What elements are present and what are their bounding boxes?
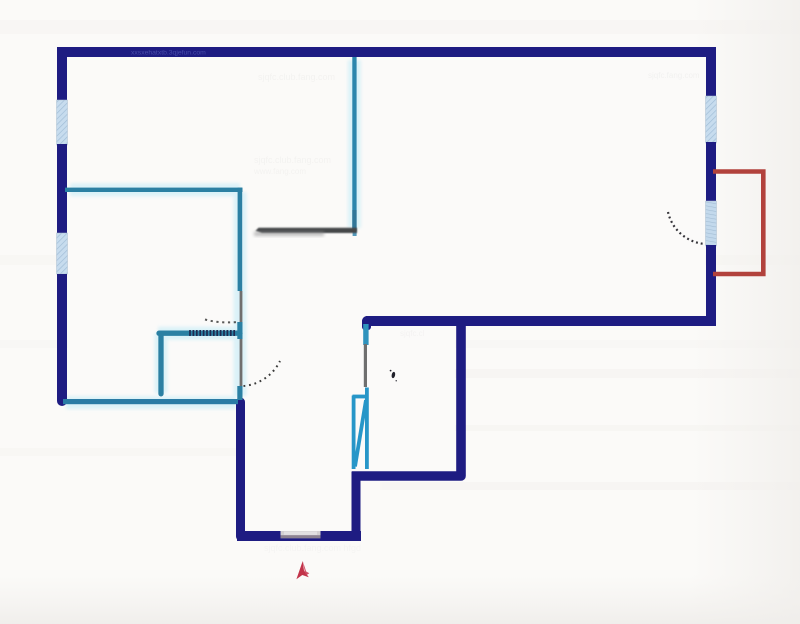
svg-text:sjqfc.cl: sjqfc.cl [400,329,425,338]
svg-text:sjqfc.club.fang.com: sjqfc.club.fang.com [258,72,335,82]
svg-text:sjqfc.fang.com: sjqfc.fang.com [648,71,700,80]
svg-text:www.fang.com: www.fang.com [253,167,306,176]
svg-text:sjqfc.club.fang.com: sjqfc.club.fang.com [254,155,331,165]
svg-text:sjqfc.club.fang.com hfgd: sjqfc.club.fang.com hfgd [264,543,361,553]
svg-text:xxsxehatxtb.3qjefun.com: xxsxehatxtb.3qjefun.com [131,49,206,56]
